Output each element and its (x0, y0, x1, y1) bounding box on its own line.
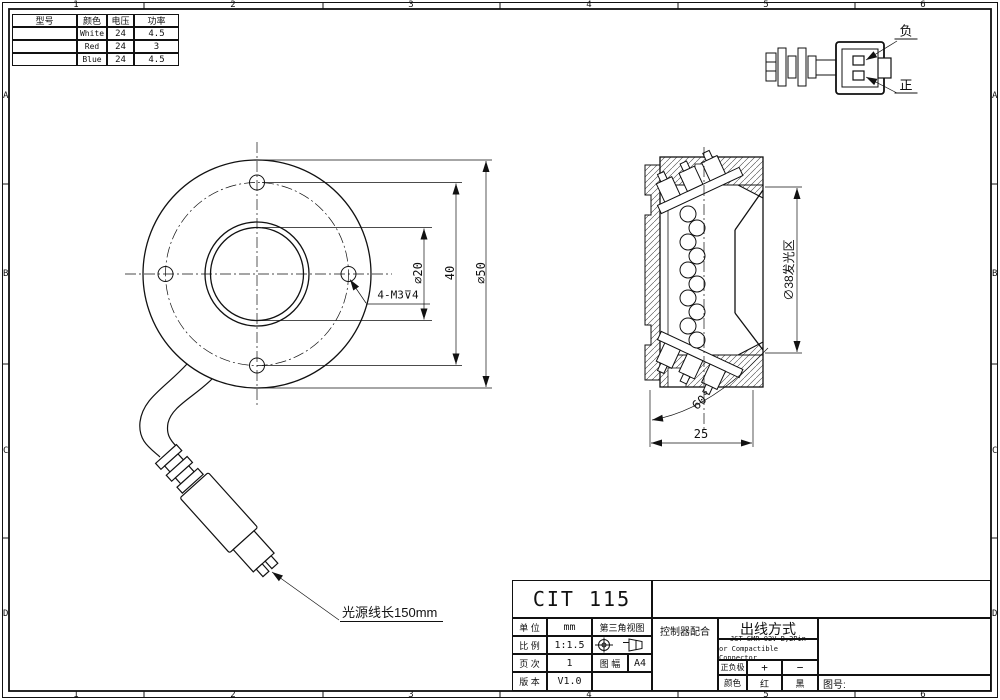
zone-row-left-c: C (3, 446, 8, 456)
zone-row-right-c: C (992, 446, 997, 456)
scale-label: 比 例 (512, 636, 547, 654)
front-view-ring (125, 142, 492, 406)
zone-col-top-2: 2 (230, 0, 235, 10)
zone-col-bottom-3: 3 (408, 690, 413, 700)
connector-detail (766, 41, 897, 94)
version-label: 版 本 (512, 672, 547, 691)
spec-cell (12, 53, 77, 66)
zone-col-top-4: 4 (586, 0, 591, 10)
dim-outer-diameter: ∅50 (475, 262, 487, 284)
zone-col-top-1: 1 (73, 0, 78, 10)
dim-inner-diameter: ∅20 (412, 262, 424, 284)
zone-col-bottom-1: 1 (73, 690, 78, 700)
drawing-number-label: 图号: (818, 675, 991, 691)
spec-cell (12, 27, 77, 40)
sheet-size-label: 图 幅 (592, 654, 628, 672)
connector-spec: JST SMR-02V-B,2Pin or Compactible Connec… (718, 639, 818, 660)
wire-color-label: 颜色 (718, 675, 747, 691)
title-block-empty-top (652, 580, 991, 618)
scale-value: 1:1.5 (547, 636, 592, 654)
zone-row-left-b: B (3, 269, 8, 279)
unit-label: 单 位 (512, 618, 547, 636)
spec-cell-color-white: White (77, 27, 107, 40)
polarity-positive: + (747, 660, 782, 675)
zone-col-bottom-4: 4 (586, 690, 591, 700)
title-block-empty-right (818, 618, 991, 675)
page-value: 1 (547, 654, 592, 672)
drawing-sheet: 1 2 3 4 5 6 1 2 3 4 5 6 A B C D A B C D … (0, 0, 1000, 700)
spec-cell: 4.5 (134, 53, 179, 66)
page-label: 页 次 (512, 654, 547, 672)
spec-cell (12, 40, 77, 53)
spec-cell: 24 (107, 53, 134, 66)
version-value: V1.0 (547, 672, 592, 691)
dim-bolt-circle: 40 (444, 266, 456, 280)
zone-row-right-b: B (992, 269, 997, 279)
spec-cell-color-red: Red (77, 40, 107, 53)
projection-label: 第三角视图 (592, 618, 652, 636)
zone-col-bottom-2: 2 (230, 690, 235, 700)
polarity-label: 正负极 (718, 660, 747, 675)
controller-match-label: 控制器配合 (652, 618, 718, 691)
third-angle-projection-icon (592, 636, 652, 654)
wire-color-positive: 红 (747, 675, 782, 691)
spec-header-model: 型号 (12, 14, 77, 27)
spec-header-power: 功率 (134, 14, 179, 27)
zone-col-top-3: 3 (408, 0, 413, 10)
spec-cell: 24 (107, 40, 134, 53)
side-section-view (645, 142, 802, 447)
zone-col-bottom-5: 5 (763, 690, 768, 700)
spec-cell: 3 (134, 40, 179, 53)
spec-header-color: 颜色 (77, 14, 107, 27)
dim-emitting-area: ∅38发光区 (783, 239, 795, 300)
spec-cell-color-blue: Blue (77, 53, 107, 66)
zone-col-top-5: 5 (763, 0, 768, 10)
spec-cell: 4.5 (134, 27, 179, 40)
zone-row-right-a: A (992, 91, 997, 101)
zone-row-left-a: A (3, 91, 8, 101)
spec-cell: 24 (107, 27, 134, 40)
positive-terminal-label: 正 (894, 79, 917, 94)
unit-value: mm (547, 618, 592, 636)
zone-col-bottom-6: 6 (920, 690, 925, 700)
model-number: CIT 115 (512, 580, 652, 618)
thread-note: 4-M3⊽4 (377, 290, 418, 301)
polarity-negative: − (782, 660, 818, 675)
zone-col-top-6: 6 (920, 0, 925, 10)
dim-depth: 25 (694, 428, 708, 440)
spec-header-voltage: 电压 (107, 14, 134, 27)
zone-row-right-d: D (992, 609, 997, 619)
cable-assembly (140, 364, 339, 620)
connector-spec-line1: JST SMR-02V-B,2Pin (730, 635, 806, 645)
wire-color-negative: 黑 (782, 675, 818, 691)
negative-terminal-label: 负 (894, 25, 917, 40)
center-lines (125, 142, 392, 406)
title-block-empty-cell (592, 672, 652, 691)
sheet-size-value: A4 (628, 654, 652, 672)
led-lens-column (680, 206, 705, 348)
cable-length-note: 光源线长150mm (340, 606, 443, 622)
zone-row-left-d: D (3, 609, 8, 619)
